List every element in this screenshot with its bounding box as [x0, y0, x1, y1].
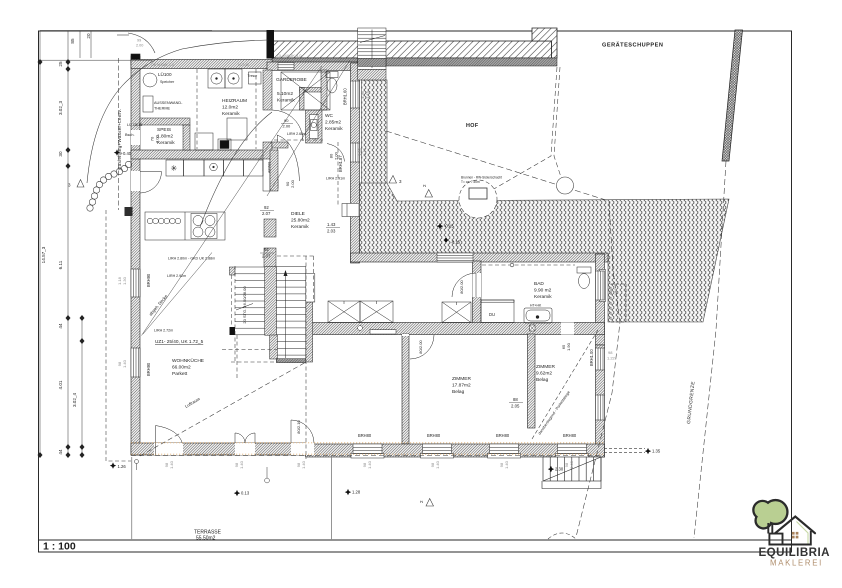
svg-text:BRH90: BRH90	[146, 273, 151, 287]
svg-text:44: 44	[58, 449, 63, 455]
svg-text:5.10m2: 5.10m2	[277, 91, 293, 97]
svg-text:-0.15: -0.15	[444, 224, 454, 229]
svg-text:44: 44	[58, 323, 63, 329]
svg-text:1.22: 1.22	[613, 287, 618, 296]
svg-text:1.40: 1.40	[301, 460, 306, 469]
svg-text:90: 90	[284, 118, 289, 123]
svg-text:LIRH 2.92m: LIRH 2.92m	[167, 274, 186, 278]
svg-text:THERME: THERME	[154, 107, 170, 111]
svg-text:1.28: 1.28	[352, 490, 361, 495]
svg-text:1.40: 1.40	[569, 460, 574, 469]
svg-text:BRH80: BRH80	[496, 433, 510, 438]
svg-text:AUSSENWAND-: AUSSENWAND-	[154, 101, 183, 105]
svg-text:1.40: 1.40	[239, 460, 244, 469]
svg-text:LÜ100: LÜ100	[238, 63, 249, 67]
svg-text:✳: ✳	[171, 164, 178, 173]
svg-text:Bsch.: Bsch.	[125, 133, 135, 137]
svg-text:17.87m2: 17.87m2	[452, 383, 471, 389]
svg-text:1.35: 1.35	[652, 449, 661, 454]
svg-text:LIRH 2.72m: LIRH 2.72m	[154, 329, 173, 333]
svg-text:Nische: Nische	[267, 162, 271, 173]
svg-text:EQUILIBRIA: EQUILIBRIA	[759, 546, 831, 559]
svg-text:LÜ100: LÜ100	[158, 71, 172, 77]
svg-text:OK MAUK 4.0: OK MAUK 4.0	[151, 63, 174, 67]
svg-text:Gasleitung+Wasser+Lenrv.: Gasleitung+Wasser+Lenrv.	[117, 109, 122, 170]
svg-text:55.50m2: 55.50m2	[196, 536, 216, 542]
svg-text:80/2.00: 80/2.00	[459, 280, 464, 294]
svg-text:BRH1.00: BRH1.00	[589, 349, 594, 366]
svg-text:Keramik: Keramik	[534, 294, 552, 300]
svg-text:Keramik: Keramik	[325, 126, 343, 132]
svg-text:1.40: 1.40	[435, 460, 440, 469]
svg-text:80/2.00: 80/2.00	[418, 340, 423, 354]
svg-text:20: 20	[86, 33, 91, 39]
svg-text:12.0m2: 12.0m2	[222, 105, 238, 111]
svg-text:SPEIS: SPEIS	[157, 127, 171, 133]
svg-text:1.40: 1.40	[122, 359, 127, 368]
svg-text:2.07: 2.07	[262, 254, 271, 259]
svg-text:Belag: Belag	[452, 389, 465, 395]
svg-text:LIRH 2.91m: LIRH 2.91m	[326, 177, 345, 181]
svg-text:Speicher: Speicher	[160, 80, 175, 84]
svg-text:HOF: HOF	[466, 123, 479, 129]
svg-text:BRH80: BRH80	[563, 433, 577, 438]
svg-text:Keramik: Keramik	[277, 98, 295, 104]
svg-text:1.40: 1.40	[504, 460, 509, 469]
svg-text:Belag: Belag	[536, 377, 549, 383]
svg-text:92: 92	[264, 205, 269, 210]
svg-text:GERÄTESCHUPPEN: GERÄTESCHUPPEN	[602, 42, 663, 49]
svg-text:1.15: 1.15	[365, 90, 370, 99]
svg-text:88: 88	[513, 397, 518, 402]
svg-text:30: 30	[58, 151, 63, 157]
svg-text:Tresor: Tresor	[248, 74, 259, 78]
svg-text:BRH1.87: BRH1.87	[338, 155, 343, 172]
svg-text:2.00: 2.00	[290, 179, 295, 188]
svg-text:WC: WC	[325, 113, 334, 119]
svg-text:GL MAUK 4.0: GL MAUK 4.0	[277, 53, 302, 58]
svg-text:LÜ 15/15: LÜ 15/15	[127, 123, 142, 127]
svg-text:1.15: 1.15	[362, 147, 367, 156]
svg-text:1.22: 1.22	[607, 356, 616, 361]
svg-text:1.40: 1.40	[169, 460, 174, 469]
svg-text:BRH80: BRH80	[358, 433, 372, 438]
svg-text:LIRH 2.80m - GKD UK 2.88m: LIRH 2.80m - GKD UK 2.88m	[168, 257, 215, 261]
svg-text:2.30: 2.30	[555, 467, 564, 472]
svg-text:MAKLEREI: MAKLEREI	[770, 559, 823, 568]
svg-text:BRH80: BRH80	[427, 433, 441, 438]
svg-text:14.57_3: 14.57_3	[41, 246, 46, 263]
svg-text:3.02_4: 3.02_4	[72, 393, 77, 407]
svg-text:ZIMMER: ZIMMER	[452, 376, 471, 382]
svg-text:9.62m2: 9.62m2	[536, 371, 552, 377]
svg-text:99: 99	[137, 39, 141, 43]
svg-text:DIELE: DIELE	[291, 211, 305, 217]
svg-text:LIRH 2.68m: LIRH 2.68m	[287, 132, 306, 136]
svg-text:1.30: 1.30	[122, 276, 127, 285]
svg-text:80/2.10: 80/2.10	[296, 420, 301, 434]
svg-text:Parkett: Parkett	[172, 371, 188, 377]
svg-text:+0.40: +0.40	[121, 151, 132, 156]
svg-text:9.90 m2: 9.90 m2	[534, 288, 552, 294]
svg-text:1 : 100: 1 : 100	[43, 541, 76, 553]
svg-text:UZ1- 25/40, UK 1.72_5: UZ1- 25/40, UK 1.72_5	[155, 339, 204, 344]
svg-text:1.90: 1.90	[566, 342, 571, 351]
svg-text:HT+HK: HT+HK	[530, 304, 542, 308]
svg-text:T= ca. 7.50m: T= ca. 7.50m	[461, 180, 480, 184]
svg-text:2.00: 2.00	[155, 134, 160, 143]
svg-text:BAD: BAD	[534, 281, 544, 287]
svg-text:BRH1.60: BRH1.60	[343, 88, 348, 105]
svg-text:85: 85	[70, 38, 75, 44]
svg-text:6.11: 6.11	[58, 260, 63, 269]
svg-text:WOHNKÜCHE: WOHNKÜCHE	[172, 357, 204, 364]
svg-text:92: 92	[264, 247, 269, 252]
svg-text:2.00: 2.00	[283, 124, 292, 129]
svg-text:ZIMMER: ZIMMER	[536, 364, 555, 370]
svg-text:0.13: 0.13	[241, 491, 250, 496]
svg-text:1.26: 1.26	[118, 464, 127, 469]
svg-text:2.05: 2.05	[511, 404, 520, 409]
svg-text:2.85m2: 2.85m2	[325, 120, 341, 126]
svg-text:2.07: 2.07	[262, 211, 271, 216]
svg-text:25.80m2: 25.80m2	[291, 218, 310, 224]
svg-text:3.02_3: 3.02_3	[58, 101, 63, 115]
svg-text:66.00m2: 66.00m2	[172, 365, 191, 371]
svg-text:1.43: 1.43	[327, 222, 336, 227]
svg-text:4.01: 4.01	[58, 380, 63, 389]
svg-text:2.00: 2.00	[136, 44, 143, 48]
svg-text:98: 98	[608, 350, 613, 355]
svg-text:2.03: 2.03	[327, 229, 336, 234]
svg-text:DU: DU	[489, 312, 495, 317]
svg-text:-0.15: -0.15	[451, 240, 461, 245]
svg-text:20 STG. 16.50/28.00: 20 STG. 16.50/28.00	[242, 286, 247, 324]
svg-text:Keramik: Keramik	[157, 140, 175, 146]
svg-text:BRH90: BRH90	[146, 362, 151, 376]
svg-text:25: 25	[58, 61, 63, 67]
svg-text:HEIZRAUM: HEIZRAUM	[222, 98, 247, 104]
svg-text:Keramik: Keramik	[222, 111, 240, 117]
svg-text:1.40: 1.40	[367, 460, 372, 469]
svg-text:Keramik: Keramik	[291, 224, 309, 230]
